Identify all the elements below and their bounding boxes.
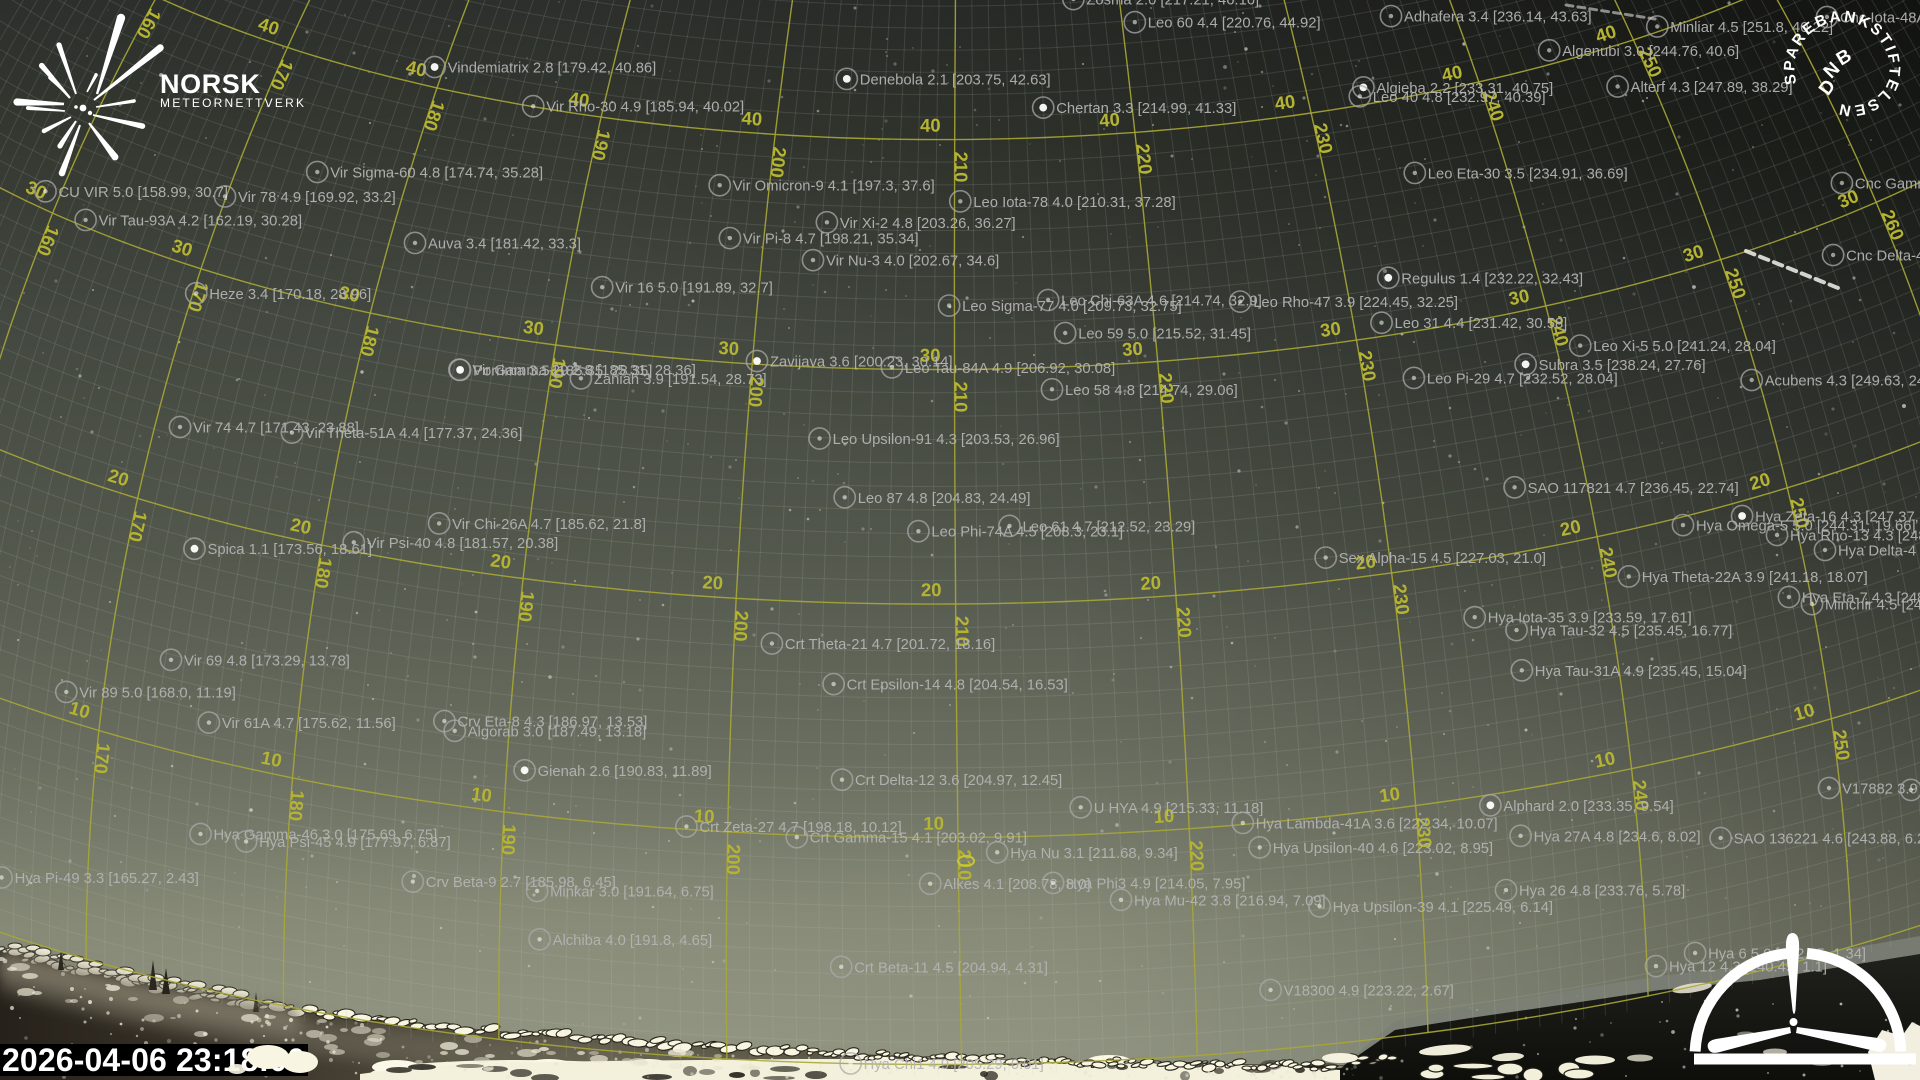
svg-text:NORSK: NORSK (160, 69, 261, 99)
svg-text:10: 10 (1378, 783, 1401, 807)
svg-text:U HYA 4.9 [215.33, 11.18]: U HYA 4.9 [215.33, 11.18] (1094, 801, 1264, 817)
svg-text:Vir 69 4.8 [173.29, 13.78]: Vir 69 4.8 [173.29, 13.78] (184, 653, 350, 669)
svg-text:Heze 3.4 [170.18, 28.96]: Heze 3.4 [170.18, 28.96] (209, 287, 371, 303)
svg-text:Algenubi 3.0 [244.76, 40.6]: Algenubi 3.0 [244.76, 40.6] (1562, 44, 1739, 60)
svg-text:Hya Lambda-41A 3.6 [222.34, 10: Hya Lambda-41A 3.6 [222.34, 10.07] (1256, 816, 1498, 832)
svg-text:Leo 40 4.8 [232.97, 40.39]: Leo 40 4.8 [232.97, 40.39] (1373, 90, 1546, 106)
svg-text:Vir 78 4.9 [169.92, 33.2]: Vir 78 4.9 [169.92, 33.2] (238, 190, 396, 206)
svg-text:Hya Tau-32 4.5 [235.45, 16.77]: Hya Tau-32 4.5 [235.45, 16.77] (1530, 624, 1733, 640)
svg-text:Adhafera 3.4 [236.14, 43.63]: Adhafera 3.4 [236.14, 43.63] (1404, 10, 1592, 26)
svg-text:Hya Upsilon-39 4.1 [225.49, 6.: Hya Upsilon-39 4.1 [225.49, 6.14] (1333, 900, 1553, 916)
svg-text:230: 230 (1389, 583, 1414, 616)
svg-text:30: 30 (1319, 317, 1342, 341)
svg-text:Zaniah 3.9 [191.54, 28.73]: Zaniah 3.9 [191.54, 28.73] (594, 372, 767, 388)
svg-text:210: 210 (951, 152, 972, 183)
svg-text:Cnc Delta-47 3.9 [256.31, 28.6: Cnc Delta-47 3.9 [256.31, 28.64] (1846, 249, 1920, 265)
svg-text:220: 220 (1173, 606, 1196, 638)
svg-text:Sex Alpha-15 4.5 [227.03, 21.0: Sex Alpha-15 4.5 [227.03, 21.0] (1339, 551, 1546, 567)
svg-text:Alphard 2.0 [233.35, 9.54]: Alphard 2.0 [233.35, 9.54] (1503, 799, 1673, 815)
svg-text:Hya 26 4.8 [233.76, 5.78]: Hya 26 4.8 [233.76, 5.78] (1519, 884, 1685, 900)
svg-text:Vir Rho-30 4.9 [185.94, 40.02]: Vir Rho-30 4.9 [185.94, 40.02] (546, 100, 744, 116)
svg-text:Crt Beta-11 4.5 [204.94, 4.31]: Crt Beta-11 4.5 [204.94, 4.31] (854, 960, 1048, 976)
svg-text:Denebola 2.1 [203.75, 42.63]: Denebola 2.1 [203.75, 42.63] (860, 72, 1051, 88)
svg-text:20: 20 (489, 549, 512, 572)
svg-text:Leo Tau-84A 4.9 [206.92, 30.08: Leo Tau-84A 4.9 [206.92, 30.08] (905, 361, 1115, 377)
svg-text:Crt Gamma-15 4.1 [203.02, 9.91: Crt Gamma-15 4.1 [203.02, 9.91] (810, 831, 1027, 847)
svg-text:Vir Chi-26A 4.7 [185.62, 21.8]: Vir Chi-26A 4.7 [185.62, 21.8] (452, 517, 646, 533)
svg-text:Spica 1.1 [173.56, 18.61]: Spica 1.1 [173.56, 18.61] (208, 542, 373, 558)
svg-text:Vir Pi-8 4.7 [198.21, 35.34]: Vir Pi-8 4.7 [198.21, 35.34] (743, 232, 919, 248)
svg-text:Hya Theta-22A 3.9 [241.18, 18.: Hya Theta-22A 3.9 [241.18, 18.07] (1642, 570, 1868, 586)
svg-text:Vindemiatrix 2.8 [179.42, 40.8: Vindemiatrix 2.8 [179.42, 40.86] (448, 61, 657, 77)
svg-text:SAO 136221 4.6 [243.88, 6.2]: SAO 136221 4.6 [243.88, 6.2] (1734, 832, 1920, 848)
svg-text:Hya Phi3 4.9 [214.05, 7.95]: Hya Phi3 4.9 [214.05, 7.95] (1066, 876, 1245, 892)
svg-text:Hya Upsilon-40 4.6 [223.02, 8.: Hya Upsilon-40 4.6 [223.02, 8.95] (1273, 841, 1493, 857)
svg-text:Chertan 3.3 [214.99, 41.33]: Chertan 3.3 [214.99, 41.33] (1056, 101, 1236, 117)
svg-text:20: 20 (1140, 572, 1162, 594)
svg-text:Hya Rho-13 4.3 [248.92, 18.21]: Hya Rho-13 4.3 [248.92, 18.21] (1790, 529, 1920, 545)
svg-text:30: 30 (522, 316, 545, 340)
svg-text:40: 40 (741, 107, 763, 129)
svg-text:Vir 16 5.0 [191.89, 32.7]: Vir 16 5.0 [191.89, 32.7] (615, 281, 773, 297)
svg-text:Leo Rho-47 3.9 [224.45, 32.25]: Leo Rho-47 3.9 [224.45, 32.25] (1253, 295, 1458, 311)
svg-text:Alchiba 4.0 [191.8, 4.65]: Alchiba 4.0 [191.8, 4.65] (553, 933, 713, 949)
svg-text:10: 10 (1593, 747, 1617, 772)
svg-text:Vir Theta-51A 4.4 [177.37, 24.: Vir Theta-51A 4.4 [177.37, 24.36] (305, 426, 522, 442)
svg-text:Vir Nu-3 4.0 [202.67, 34.6]: Vir Nu-3 4.0 [202.67, 34.6] (826, 254, 999, 270)
svg-text:40: 40 (1273, 90, 1296, 114)
svg-text:10: 10 (259, 747, 283, 772)
svg-text:Vir Tau-93A 4.2 [162.19, 30.28: Vir Tau-93A 4.2 [162.19, 30.28] (99, 213, 302, 229)
svg-text:170: 170 (90, 742, 114, 775)
svg-text:20: 20 (1558, 515, 1583, 540)
svg-text:Regulus 1.4 [232.22, 32.43]: Regulus 1.4 [232.22, 32.43] (1401, 271, 1583, 287)
svg-text:Leo Sigma-77 4.0 [209.73, 32.7: Leo Sigma-77 4.0 [209.73, 32.75] (962, 299, 1182, 315)
svg-text:V17882 3.9 [249.44, 7.12]: V17882 3.9 [249.44, 7.12] (1842, 782, 1920, 798)
svg-text:Hya Pi-49 3.3 [165.27, 2.43]: Hya Pi-49 3.3 [165.27, 2.43] (15, 871, 199, 887)
svg-text:200: 200 (723, 844, 745, 875)
svg-text:250: 250 (1829, 728, 1854, 761)
svg-text:Vir Sigma-60 4.8 [174.74, 35.2: Vir Sigma-60 4.8 [174.74, 35.28] (330, 166, 543, 182)
svg-text:10: 10 (470, 783, 493, 806)
svg-text:Gienah 2.6 [190.83, 11.89]: Gienah 2.6 [190.83, 11.89] (538, 764, 712, 780)
svg-text:220: 220 (1132, 142, 1156, 175)
svg-text:Leo 61 4.7 [212.52, 23.29]: Leo 61 4.7 [212.52, 23.29] (1023, 519, 1196, 535)
svg-text:200: 200 (730, 610, 753, 642)
svg-text:Leo 87 4.8 [204.83, 24.49]: Leo 87 4.8 [204.83, 24.49] (858, 491, 1031, 507)
svg-text:190: 190 (514, 590, 538, 623)
svg-text:Vir 61A 4.7 [175.62, 11.56]: Vir 61A 4.7 [175.62, 11.56] (222, 716, 396, 732)
svg-text:Crt Theta-21 4.7 [201.72, 18.1: Crt Theta-21 4.7 [201.72, 18.16] (785, 637, 995, 653)
svg-text:Auva 3.4 [181.42, 33.3]: Auva 3.4 [181.42, 33.3] (428, 236, 581, 252)
svg-text:Minchir 4.5 [249.98, 14.97]: Minchir 4.5 [249.98, 14.97] (1825, 598, 1920, 614)
svg-text:Hya Psi-45 4.9 [177.97, 6.87]: Hya Psi-45 4.9 [177.97, 6.87] (259, 835, 451, 851)
svg-text:SAO 117821 4.7 [236.45, 22.74]: SAO 117821 4.7 [236.45, 22.74] (1528, 481, 1739, 497)
svg-text:Hya Tau-31A 4.9 [235.45, 15.04: Hya Tau-31A 4.9 [235.45, 15.04] (1535, 664, 1747, 680)
svg-text:Alterf 4.3 [247.89, 38.29]: Alterf 4.3 [247.89, 38.29] (1631, 80, 1793, 96)
svg-text:Hya 27A 4.8 [234.6, 8.02]: Hya 27A 4.8 [234.6, 8.02] (1534, 829, 1701, 845)
svg-text:Leo 60 4.4 [220.76, 44.92]: Leo 60 4.4 [220.76, 44.92] (1148, 16, 1321, 32)
svg-text:Zosma 2.0 [217.21, 46.16]: Zosma 2.0 [217.21, 46.16] (1086, 0, 1259, 9)
svg-text:CU VIR 5.0 [158.99, 30.7]: CU VIR 5.0 [158.99, 30.7] (59, 185, 228, 201)
svg-text:20: 20 (702, 571, 724, 593)
svg-text:190: 190 (498, 824, 521, 856)
svg-text:Hya Mu-42 3.8 [216.94, 7.09]: Hya Mu-42 3.8 [216.94, 7.09] (1134, 893, 1326, 909)
svg-text:180: 180 (285, 789, 309, 822)
svg-text:Cnc Gamma-43 4.7 [258.48, 31.3: Cnc Gamma-43 4.7 [258.48, 31.30] (1855, 177, 1920, 193)
svg-text:Hya Nu 3.1 [211.68, 9.34]: Hya Nu 3.1 [211.68, 9.34] (1010, 846, 1178, 862)
svg-text:Leo Upsilon-91 4.3 [203.53, 26: Leo Upsilon-91 4.3 [203.53, 26.96] (833, 432, 1060, 448)
svg-text:Hya Chi1 4.9 [205.29, 0.01]: Hya Chi1 4.9 [205.29, 0.01] (864, 1057, 1044, 1073)
svg-text:METEORNETTVERK: METEORNETTVERK (160, 96, 306, 110)
svg-text:Vir Omicron-9 4.1 [197.3, 37.6: Vir Omicron-9 4.1 [197.3, 37.6] (733, 179, 935, 195)
svg-text:Crt Epsilon-14 4.8 [204.54, 16: Crt Epsilon-14 4.8 [204.54, 16.53] (847, 678, 1068, 694)
svg-text:Vir 89 5.0 [168.0, 11.19]: Vir 89 5.0 [168.0, 11.19] (79, 685, 236, 701)
svg-text:220: 220 (1186, 840, 1208, 872)
svg-text:Vir Xi-2 4.8 [203.26, 36.27]: Vir Xi-2 4.8 [203.26, 36.27] (840, 216, 1016, 232)
svg-text:Hya Zeta-16 4.3 [247.37, 19.39: Hya Zeta-16 4.3 [247.37, 19.39] (1755, 510, 1920, 526)
svg-text:Hya Delta-4 4.2 [251.21, 17.01: Hya Delta-4 4.2 [251.21, 17.01] (1838, 544, 1920, 560)
svg-text:Acubens 4.3 [249.63, 24.78]: Acubens 4.3 [249.63, 24.78] (1765, 374, 1920, 390)
svg-text:20: 20 (289, 513, 313, 538)
svg-text:Leo Pi-29 4.7 [232.52, 28.04]: Leo Pi-29 4.7 [232.52, 28.04] (1427, 371, 1618, 387)
svg-text:30: 30 (718, 337, 740, 359)
svg-text:210: 210 (951, 381, 972, 412)
svg-text:Leo Eta-30 3.5 [234.91, 36.69]: Leo Eta-30 3.5 [234.91, 36.69] (1428, 166, 1628, 182)
svg-text:Leo Xi-5 5.0 [241.24, 28.04]: Leo Xi-5 5.0 [241.24, 28.04] (1593, 339, 1776, 355)
svg-text:Algorab 3.0 [187.49, 13.18]: Algorab 3.0 [187.49, 13.18] (468, 724, 647, 740)
svg-text:Leo Iota-78 4.0 [210.31, 37.28: Leo Iota-78 4.0 [210.31, 37.28] (973, 195, 1175, 211)
svg-text:20: 20 (921, 579, 942, 600)
svg-text:Leo 59 5.0 [215.52, 31.45]: Leo 59 5.0 [215.52, 31.45] (1078, 327, 1251, 343)
svg-text:200: 200 (766, 146, 790, 179)
svg-text:Leo 58 4.8 [214.74, 29.06]: Leo 58 4.8 [214.74, 29.06] (1065, 383, 1238, 399)
svg-text:Minkar 3.0 [191.64, 6.75]: Minkar 3.0 [191.64, 6.75] (550, 885, 714, 901)
svg-text:Leo 31 4.4 [231.42, 30.58]: Leo 31 4.4 [231.42, 30.58] (1395, 316, 1568, 332)
svg-text:Vir Psi-40 4.8 [181.57, 20.38]: Vir Psi-40 4.8 [181.57, 20.38] (367, 536, 558, 552)
svg-text:Crt Delta-12 3.6 [204.97, 12.4: Crt Delta-12 3.6 [204.97, 12.45] (855, 773, 1062, 789)
svg-text:V18300 4.9 [223.22, 2.67]: V18300 4.9 [223.22, 2.67] (1284, 984, 1454, 1000)
svg-text:40: 40 (920, 115, 941, 136)
